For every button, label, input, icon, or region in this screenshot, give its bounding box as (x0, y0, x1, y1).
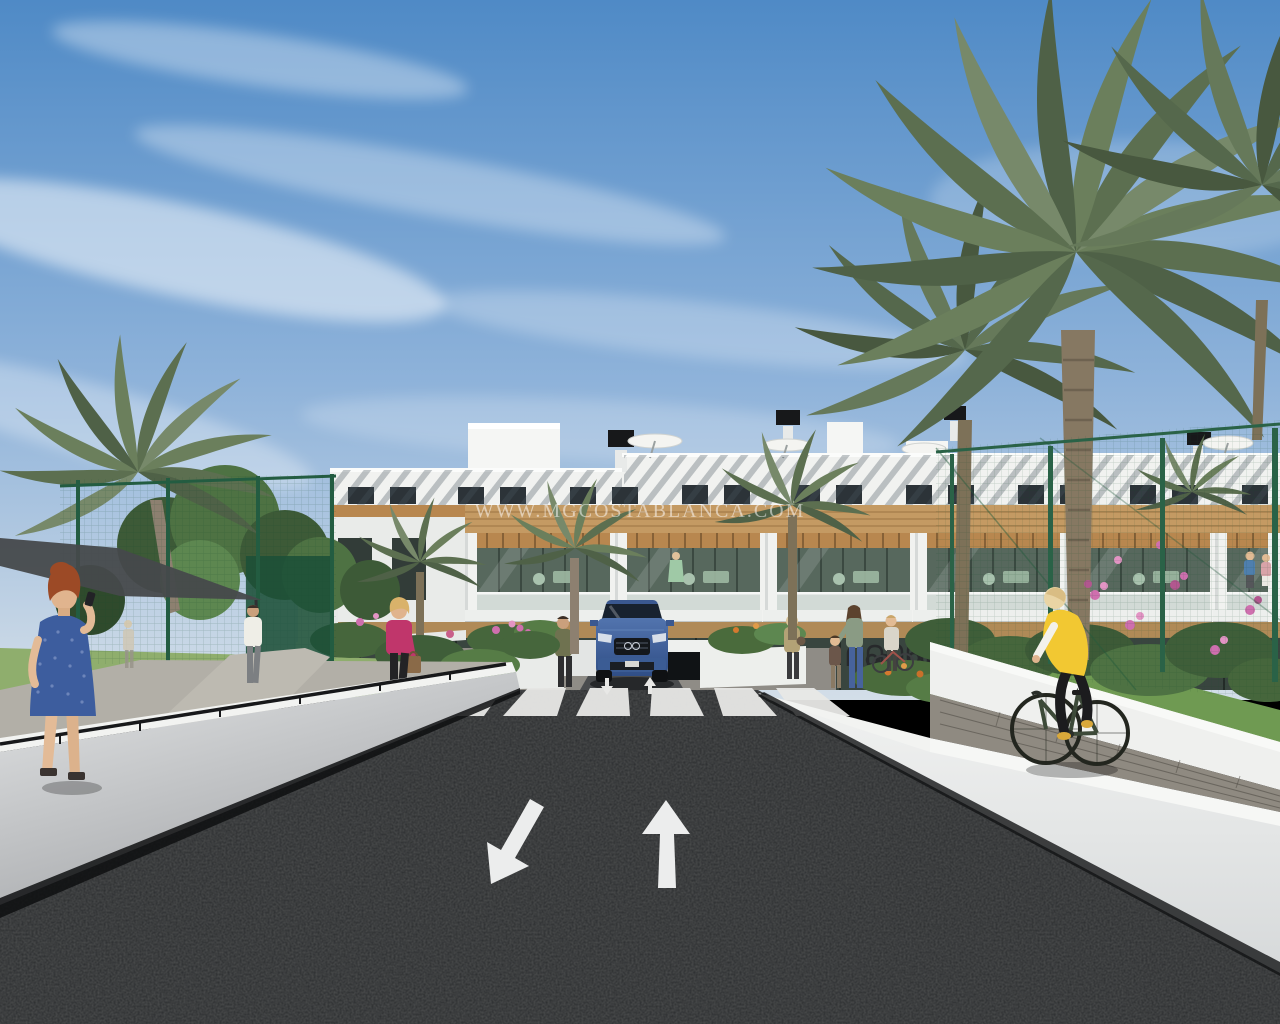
watermark: WWW.MGCOSTABLANCA.COM (475, 500, 806, 522)
render-image: WWW.MGCOSTABLANCA.COM (0, 0, 1280, 1024)
scene-svg: WWW.MGCOSTABLANCA.COM (0, 0, 1280, 1024)
right-fence (936, 420, 1280, 700)
